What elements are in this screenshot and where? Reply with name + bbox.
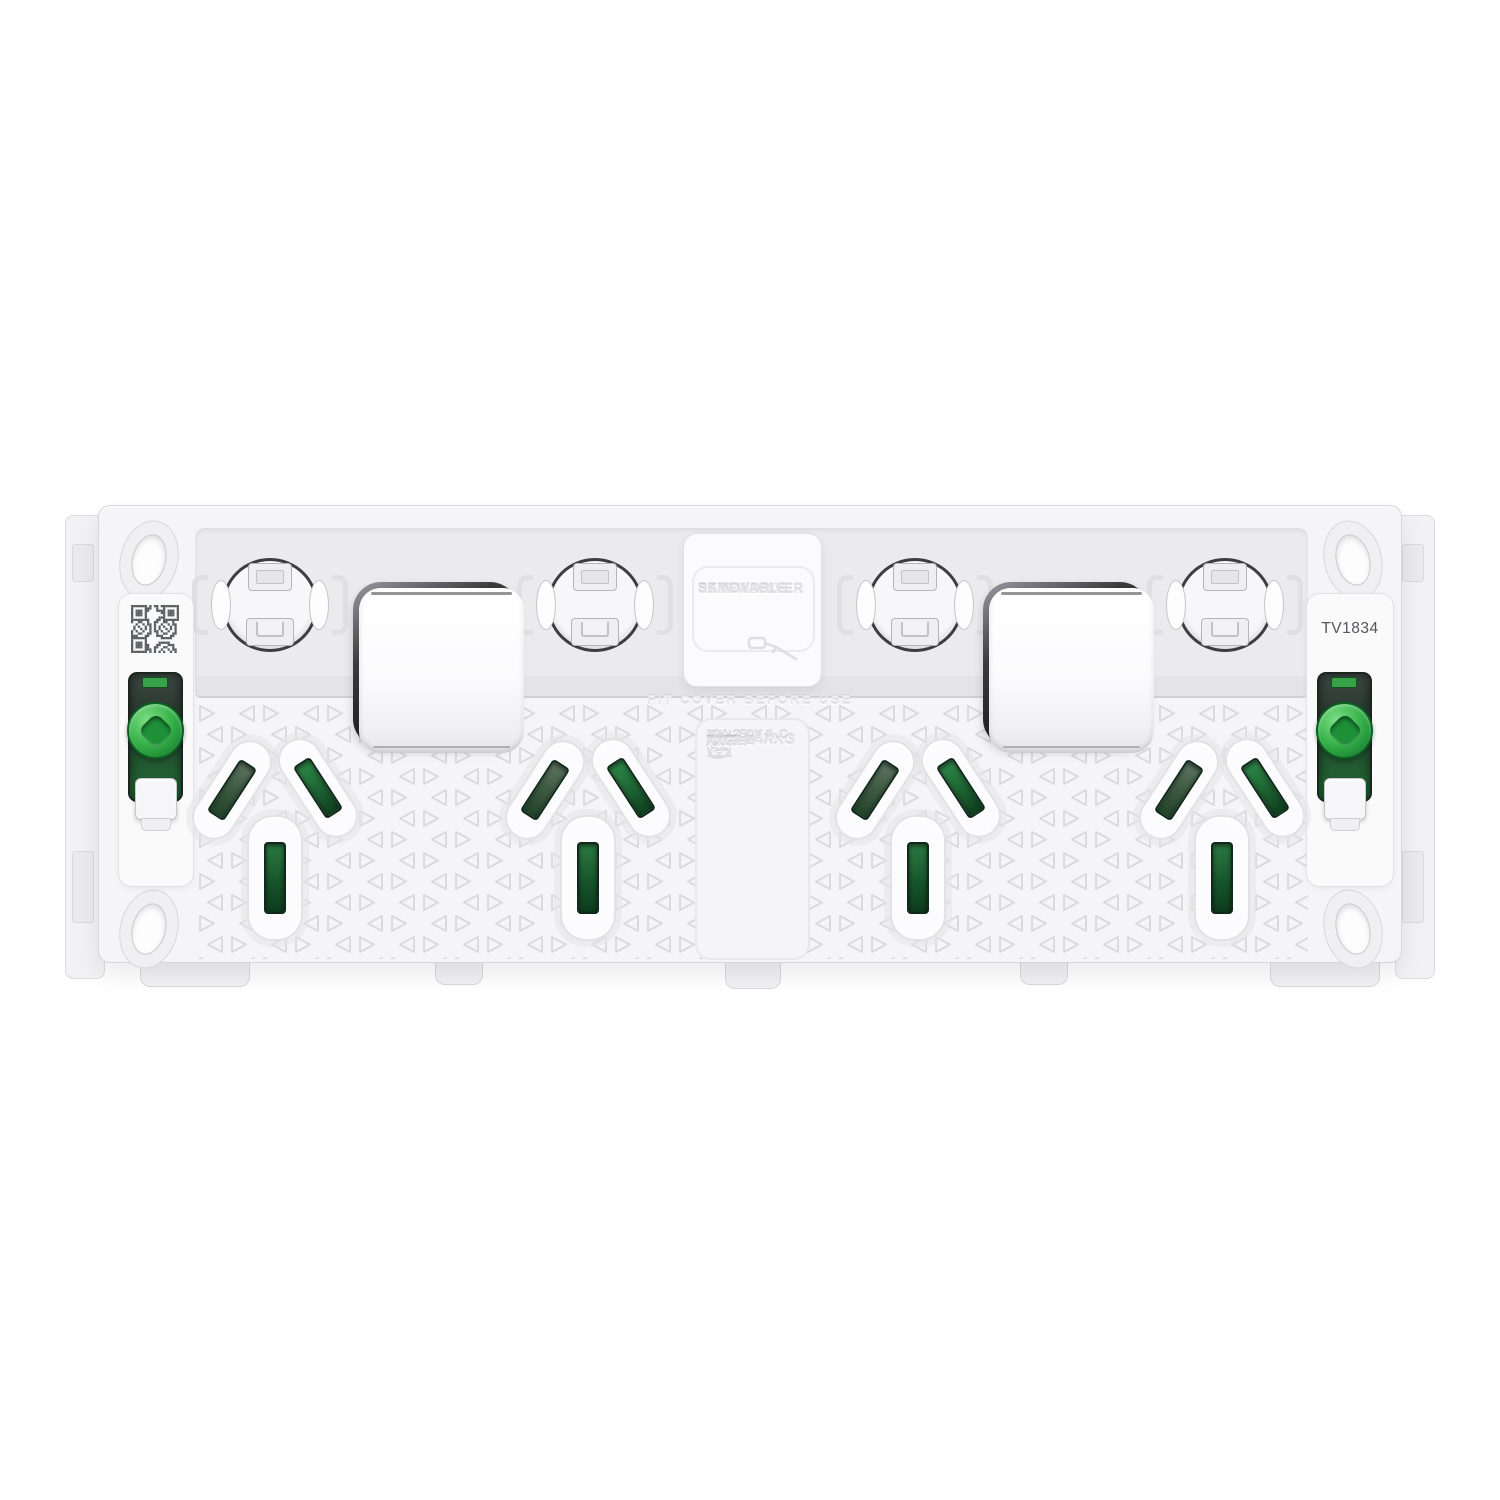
shutter-mechanism <box>1177 558 1273 652</box>
mech-tab <box>573 563 617 591</box>
socket-group-3 <box>828 735 1008 957</box>
mech-tab <box>893 563 937 591</box>
socket-aperture-earth <box>890 815 946 941</box>
mounting-hole-slot <box>126 900 172 959</box>
pin-slot <box>936 757 987 820</box>
mech-ear <box>309 580 329 630</box>
pin-slot <box>520 759 571 822</box>
wire-clamp <box>135 778 177 820</box>
qr-code <box>131 605 179 653</box>
mounting-hole-slot <box>126 531 172 590</box>
pin-slot <box>850 759 901 822</box>
mounting-hole-slot <box>1330 900 1376 959</box>
screw-drive-recess <box>138 713 175 750</box>
mounting-hole-slot <box>1330 531 1376 590</box>
pin-slot <box>207 759 258 822</box>
switch-rocker-2 <box>983 582 1148 747</box>
screw-drive-recess <box>1327 713 1364 750</box>
mech-tab <box>248 563 292 591</box>
pin-slot <box>577 842 599 914</box>
batch-code: TV1834 <box>1308 620 1392 638</box>
mech-bracket <box>192 575 208 635</box>
pin-slot <box>1211 842 1233 914</box>
screwdriver-icon <box>746 634 804 664</box>
wire-clamp <box>1324 778 1366 820</box>
terminal-screw-left <box>128 672 183 822</box>
mech-ear <box>536 580 556 630</box>
terminal-screw-right <box>1317 672 1372 822</box>
wire-clamp-tab <box>1330 818 1360 831</box>
mech-bracket <box>332 575 348 635</box>
mech-ear <box>211 580 231 630</box>
mech-ear <box>1264 580 1284 630</box>
shutter-mechanism <box>547 558 643 652</box>
mech-bracket <box>837 575 853 635</box>
mech-ear <box>1166 580 1186 630</box>
mech-tab-inner <box>256 570 284 584</box>
rocker-face <box>359 588 524 753</box>
wire-clamp-tab <box>141 818 171 831</box>
mech-tab <box>1201 618 1249 646</box>
power-outlet-mechanism: SCREWDRIVER REMOVABLE SKIN FIT COVER BEF… <box>65 505 1435 995</box>
strip-notch <box>72 851 94 923</box>
mech-ear <box>954 580 974 630</box>
rocker-face <box>989 588 1154 753</box>
socket-group-1 <box>185 735 365 957</box>
socket-group-4 <box>1132 735 1312 957</box>
mech-bracket <box>657 575 673 635</box>
mech-tab-inner <box>1211 622 1239 637</box>
shutter-mechanism <box>867 558 963 652</box>
switch-rocker-1 <box>353 582 518 747</box>
pin-slot <box>606 757 657 820</box>
terminal-tag <box>142 677 168 688</box>
mech-ear <box>856 580 876 630</box>
mech-tab <box>891 618 939 646</box>
pin-slot <box>264 842 286 914</box>
green-screw <box>127 702 184 759</box>
mech-bracket <box>1287 575 1303 635</box>
pin-slot <box>907 842 929 914</box>
socket-group-2 <box>498 735 678 957</box>
mech-tab-inner <box>901 570 929 584</box>
fit-cover-notice: FIT COVER BEFORE USE <box>605 692 895 707</box>
skin-line: SKIN <box>698 578 732 599</box>
mech-tab <box>246 618 294 646</box>
part-text: XXG <box>706 734 735 749</box>
product-photo-power-outlet: { "device": { "screwdriver_box": ["SCREW… <box>0 0 1500 1500</box>
mech-tab-inner <box>1211 570 1239 584</box>
strip-notch <box>1402 544 1424 582</box>
green-screw <box>1316 702 1373 759</box>
strip-notch <box>1402 851 1424 923</box>
socket-aperture-earth <box>247 815 303 941</box>
mech-tab <box>571 618 619 646</box>
pin-slot <box>1154 759 1205 822</box>
mech-tab-inner <box>581 570 609 584</box>
pin-slot <box>1240 757 1291 820</box>
spec-label: II CLIPSAL P3015/4XXG 10A 250V A.C. SIMP… <box>695 718 810 960</box>
mech-tab-inner <box>901 622 929 637</box>
shutter-mechanism <box>222 558 318 652</box>
mech-ear <box>634 580 654 630</box>
pin-slot <box>293 757 344 820</box>
terminal-tag <box>1331 677 1357 688</box>
strip-notch <box>72 544 94 582</box>
socket-aperture-earth <box>560 815 616 941</box>
removable-skin-cover: SCREWDRIVER REMOVABLE SKIN <box>683 533 822 687</box>
mech-tab-inner <box>581 622 609 637</box>
socket-aperture-earth <box>1194 815 1250 941</box>
mech-tab-inner <box>256 622 284 637</box>
mech-tab <box>1203 563 1247 591</box>
